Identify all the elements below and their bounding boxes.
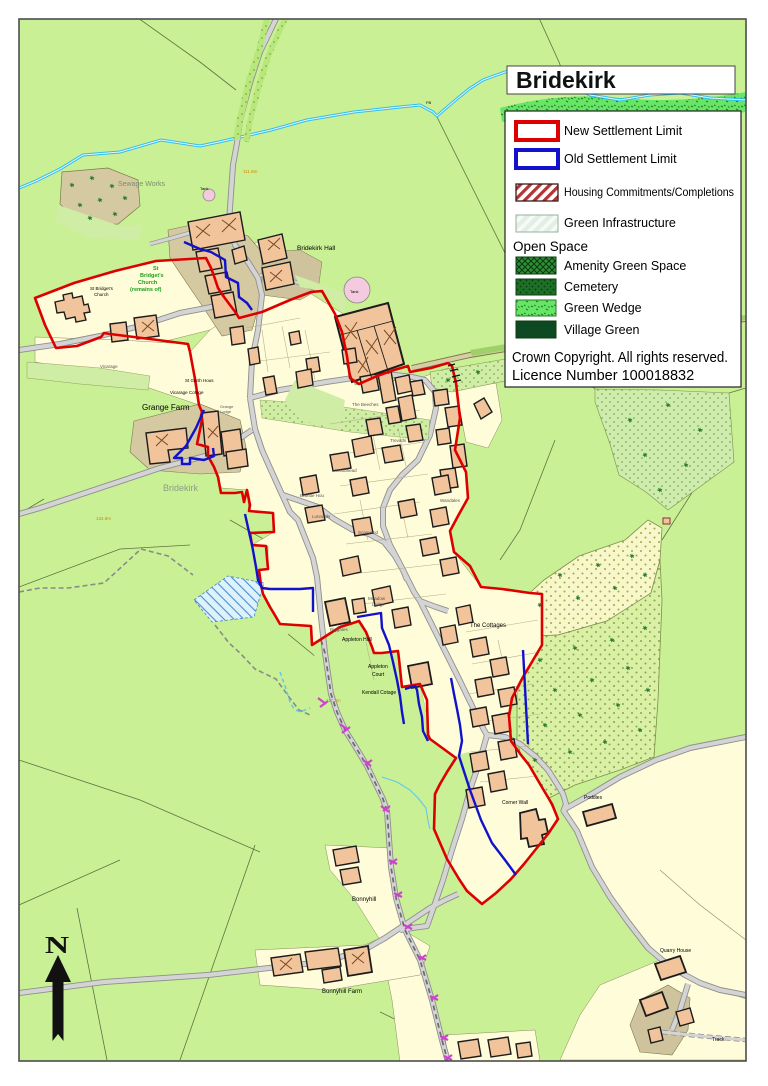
- svg-text:St: St: [153, 266, 159, 272]
- svg-text:Trevathi: Trevathi: [390, 438, 406, 443]
- svg-text:Woodhead: Woodhead: [335, 468, 357, 473]
- svg-text:Riggates: Riggates: [330, 627, 349, 632]
- svg-text:Cemetery: Cemetery: [564, 280, 619, 294]
- svg-text:111.8m: 111.8m: [243, 169, 258, 174]
- svg-text:Lodge: Lodge: [220, 409, 232, 414]
- svg-text:Sewage Works: Sewage Works: [118, 181, 165, 188]
- svg-text:Green Infrastructure: Green Infrastructure: [564, 216, 676, 230]
- svg-text:Kendall Cotage: Kendall Cotage: [362, 690, 396, 696]
- svg-text:The Beeches: The Beeches: [352, 402, 379, 407]
- svg-text:Vicarage: Vicarage: [100, 364, 118, 369]
- svg-text:(remains of): (remains of): [130, 287, 162, 293]
- svg-text:Village Green: Village Green: [564, 323, 640, 337]
- svg-text:Quarry House: Quarry House: [660, 948, 691, 954]
- svg-text:New Settlement Limit: New Settlement Limit: [564, 124, 683, 138]
- svg-text:Appleton Hall: Appleton Hall: [342, 637, 372, 643]
- svg-text:Tank: Tank: [200, 186, 208, 191]
- svg-text:Licence Number 100018832: Licence Number 100018832: [512, 368, 694, 384]
- svg-text:Amenity Green Space: Amenity Green Space: [564, 259, 686, 273]
- svg-text:117.3m: 117.3m: [326, 698, 341, 703]
- svg-text:Bonnyhill Farm: Bonnyhill Farm: [322, 989, 362, 995]
- svg-text:Church: Church: [138, 280, 158, 286]
- svg-text:Poddies: Poddies: [584, 795, 603, 801]
- svg-text:Lonninds: Lonninds: [312, 514, 331, 519]
- svg-text:Church: Church: [94, 292, 109, 297]
- svg-text:Bridekirk: Bridekirk: [516, 67, 616, 93]
- svg-text:N: N: [45, 932, 69, 958]
- svg-text:Scarwood: Scarwood: [358, 530, 379, 535]
- svg-text:Meadow: Meadow: [368, 596, 386, 601]
- svg-text:Wandales: Wandales: [440, 498, 461, 503]
- svg-text:FB: FB: [426, 100, 431, 105]
- svg-text:Court: Court: [372, 672, 385, 678]
- svg-text:Open Space: Open Space: [513, 239, 588, 254]
- svg-text:Old Settlement Limit: Old Settlement Limit: [564, 152, 677, 166]
- svg-text:Bridekirk Hall: Bridekirk Hall: [297, 245, 336, 252]
- svg-text:Corner Wall: Corner Wall: [502, 800, 528, 806]
- svg-text:St Bridget's: St Bridget's: [90, 286, 114, 291]
- svg-text:Housing Commitments/Completion: Housing Commitments/Completions: [564, 185, 734, 199]
- svg-text:Grange Farm: Grange Farm: [142, 403, 190, 412]
- svg-text:Lodge: Lodge: [372, 602, 385, 607]
- svg-text:St Garth Hous: St Garth Hous: [185, 378, 214, 383]
- svg-text:134.9m: 134.9m: [96, 516, 111, 521]
- svg-text:Track: Track: [712, 1037, 725, 1043]
- svg-text:Appleton: Appleton: [368, 664, 388, 670]
- svg-text:Bridget's: Bridget's: [140, 273, 164, 279]
- svg-text:Vicarage Cotage: Vicarage Cotage: [170, 390, 204, 395]
- svg-text:Bonnyhill: Bonnyhill: [352, 897, 376, 903]
- svg-text:Crown Copyright. All rights re: Crown Copyright. All rights reserved.: [512, 350, 728, 366]
- svg-text:Green Wedge: Green Wedge: [564, 301, 642, 315]
- svg-text:Brande Hou: Brande Hou: [300, 493, 325, 498]
- svg-text:Bridekirk: Bridekirk: [163, 483, 199, 493]
- svg-text:The Cottages: The Cottages: [470, 623, 506, 629]
- svg-text:Tank: Tank: [350, 289, 358, 294]
